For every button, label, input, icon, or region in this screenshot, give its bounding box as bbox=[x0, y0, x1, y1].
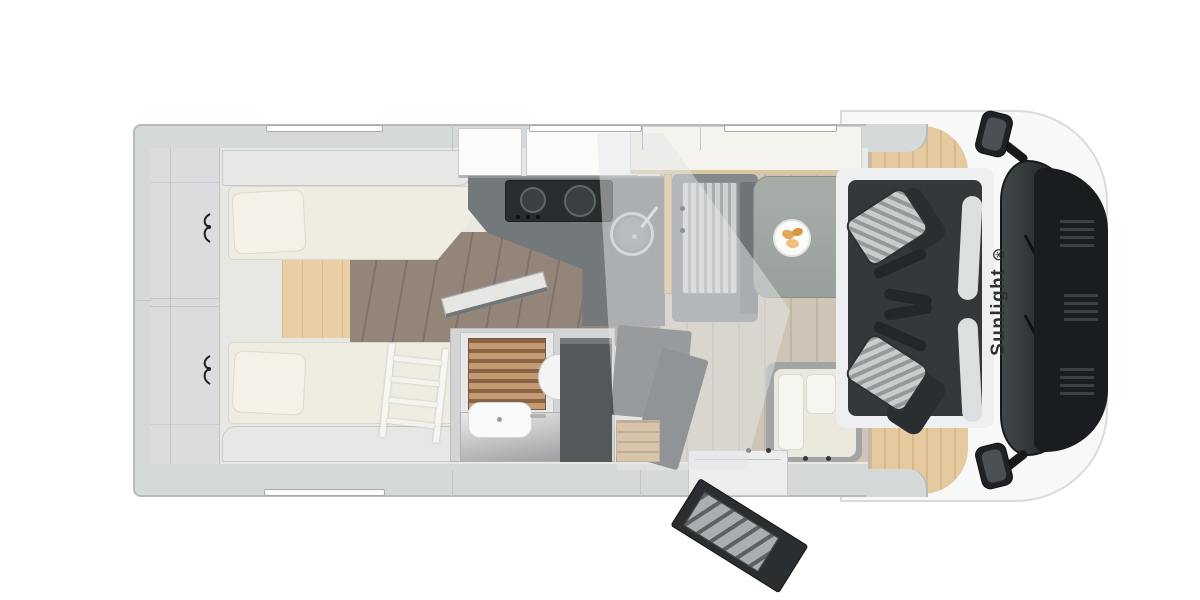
wall-seam bbox=[642, 124, 643, 150]
shelf-line bbox=[150, 306, 220, 307]
brand-label: Sunlight bbox=[988, 268, 1009, 356]
bench-hinge bbox=[803, 456, 808, 461]
roof-window-strip bbox=[264, 489, 385, 496]
grille-icon bbox=[1060, 220, 1094, 250]
pillow-top-bed bbox=[231, 189, 306, 255]
bench-cushion bbox=[778, 374, 804, 450]
overhead-locker-kitchen bbox=[458, 128, 522, 178]
reading-lamp-icon bbox=[200, 354, 214, 391]
wall-seam bbox=[133, 300, 152, 301]
shelf-line bbox=[150, 182, 220, 183]
shelf-line bbox=[150, 424, 220, 425]
brand-logo-text: Sunlight⊛ bbox=[986, 221, 1012, 381]
tall-wardrobe bbox=[560, 338, 612, 462]
bench-cushion bbox=[806, 374, 836, 414]
basin-faucet bbox=[530, 414, 546, 418]
wall-seam bbox=[640, 470, 641, 496]
bed-ladder bbox=[379, 343, 448, 443]
wall-seam bbox=[452, 124, 453, 150]
wall-seam bbox=[452, 470, 453, 496]
grille-icon bbox=[1060, 368, 1094, 398]
bulkhead-top bbox=[866, 124, 928, 152]
reading-lamp-icon bbox=[200, 212, 214, 249]
pillow-bottom-bed bbox=[231, 350, 306, 416]
door-hinge bbox=[766, 448, 771, 453]
engine-hood bbox=[1034, 168, 1108, 452]
breakfast-plate bbox=[773, 219, 811, 257]
gas-hob bbox=[505, 180, 613, 222]
brand-logo-icon: ⊛ bbox=[989, 246, 1008, 268]
roof-window-strip bbox=[724, 125, 837, 132]
overhead-shelf-top-bed bbox=[222, 150, 474, 186]
entry-door-window bbox=[683, 491, 779, 572]
roof-window-strip bbox=[266, 125, 383, 132]
shelf-line bbox=[150, 298, 220, 299]
bench-hinge bbox=[826, 456, 831, 461]
washbasin bbox=[468, 402, 532, 438]
grille-icon bbox=[1064, 294, 1098, 324]
wall-seam bbox=[700, 124, 701, 150]
floorplan-canvas: Sunlight⊛ bbox=[0, 0, 1200, 600]
bulkhead-bottom bbox=[866, 469, 928, 497]
shower-teak-grate bbox=[468, 338, 546, 410]
roof-window-strip bbox=[529, 125, 642, 132]
